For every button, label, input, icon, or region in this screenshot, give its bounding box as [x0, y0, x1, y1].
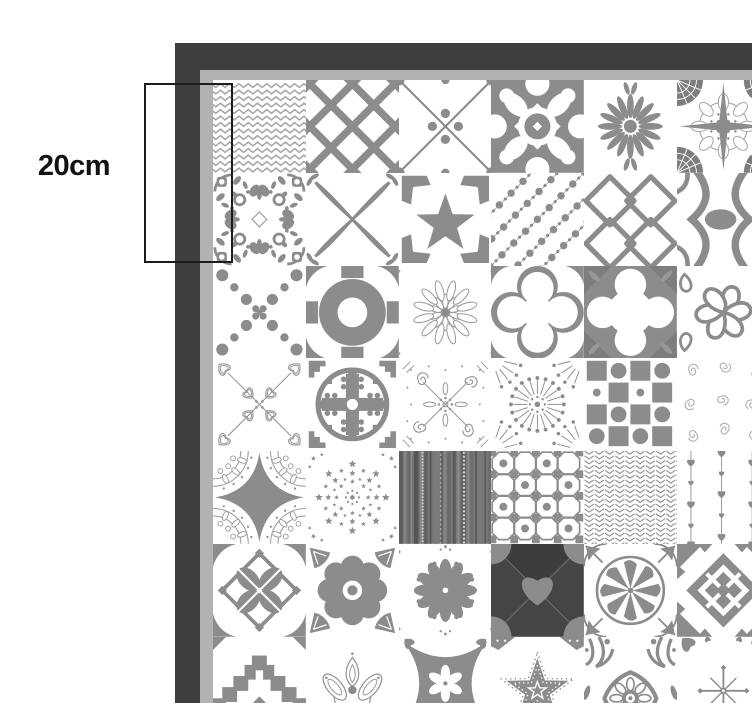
tile-checker-dots [584, 358, 677, 451]
tile-cross-medallion-ring [306, 358, 399, 451]
tile-kaleidoscope-circles [491, 80, 584, 173]
dimension-bracket [144, 83, 233, 263]
tile-spike-star-flower [399, 637, 492, 703]
tile-double-diamond-outline [584, 173, 677, 266]
tile-petal-clover-outline [677, 266, 752, 359]
tile-heart-cross-outline [213, 358, 306, 451]
tile-fine-daisy-outline [399, 266, 492, 359]
tile-daisy-bloom [584, 80, 677, 173]
tile-spiral-scatter [677, 358, 752, 451]
tile-ornate-lily [306, 637, 399, 703]
tile-stepped-arch [213, 637, 306, 703]
tile-grid [213, 80, 752, 703]
product-dimension-image: 20cm [0, 0, 752, 703]
tile-heart-strings [677, 451, 752, 544]
tile-compass-star [677, 80, 752, 173]
tile-diamond-trellis [306, 80, 399, 173]
tile-bead-diagonals [491, 173, 584, 266]
tile-pinwheel-medallion [584, 544, 677, 637]
tile-dandelion-bursts [491, 358, 584, 451]
tile-swirl-mandala [399, 358, 492, 451]
tile-astroid-lace [213, 451, 306, 544]
tile-dotted-star [491, 637, 584, 703]
tile-baroque-rosette [584, 637, 677, 703]
dimension-label: 20cm [22, 150, 126, 183]
tile-herringbone-fine [584, 451, 677, 544]
tile-ogee-ikat [677, 173, 752, 266]
tile-talavera-flower [399, 544, 492, 637]
tile-diamond-petal-frame [213, 544, 306, 637]
tile-gear-medallion [306, 266, 399, 359]
tile-white-cross-tile [584, 266, 677, 359]
tile-star-ray-burst [306, 451, 399, 544]
tile-curved-cross-petals [306, 173, 399, 266]
tile-dotted-x [213, 266, 306, 359]
tile-hearts-and-sparkle [677, 637, 752, 703]
tile-scallop-flower-bold [306, 544, 399, 637]
tile-quilt-star-geometric [677, 544, 752, 637]
tile-stripe-barcode [399, 451, 492, 544]
tile-thin-cross-dots [399, 80, 492, 173]
tile-quatrefoil-outline [491, 266, 584, 359]
tile-bold-star-corners [399, 173, 492, 266]
tile-octagon-lattice [491, 451, 584, 544]
tile-dark-heart-square [491, 544, 584, 637]
